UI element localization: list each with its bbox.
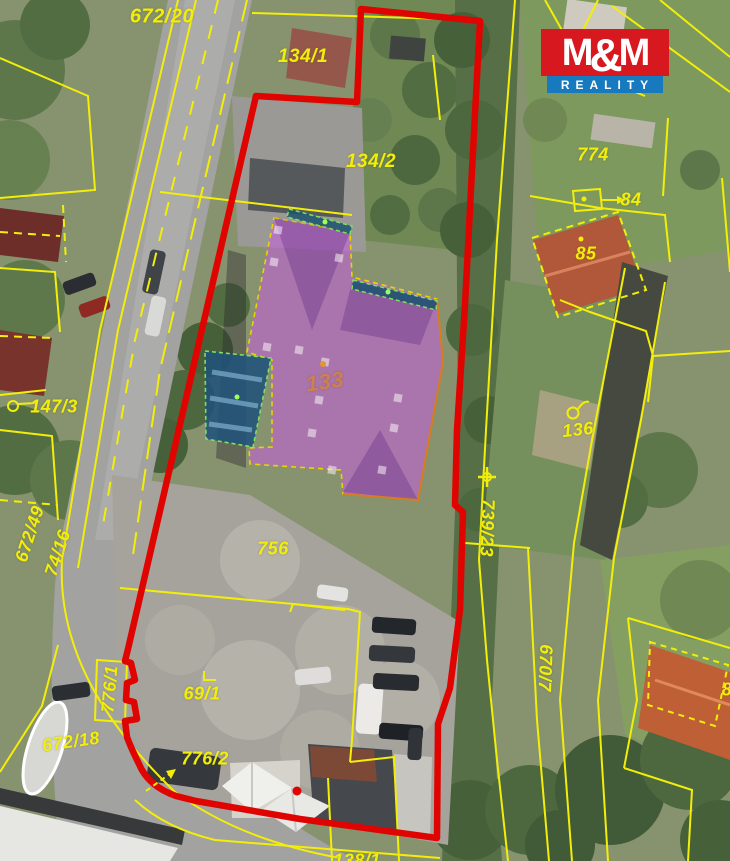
map-overlay-svg	[0, 0, 730, 861]
logo-ampersand: &	[589, 32, 620, 78]
logo-mm-mark: M&M	[541, 29, 669, 76]
logo-m2: M	[619, 34, 649, 72]
agency-logo: M&M REALITY	[541, 29, 669, 93]
aerial-map[interactable]: 672/20134/1134/27748485147/3133136739/23…	[0, 0, 730, 861]
logo-m1: M	[562, 34, 592, 72]
